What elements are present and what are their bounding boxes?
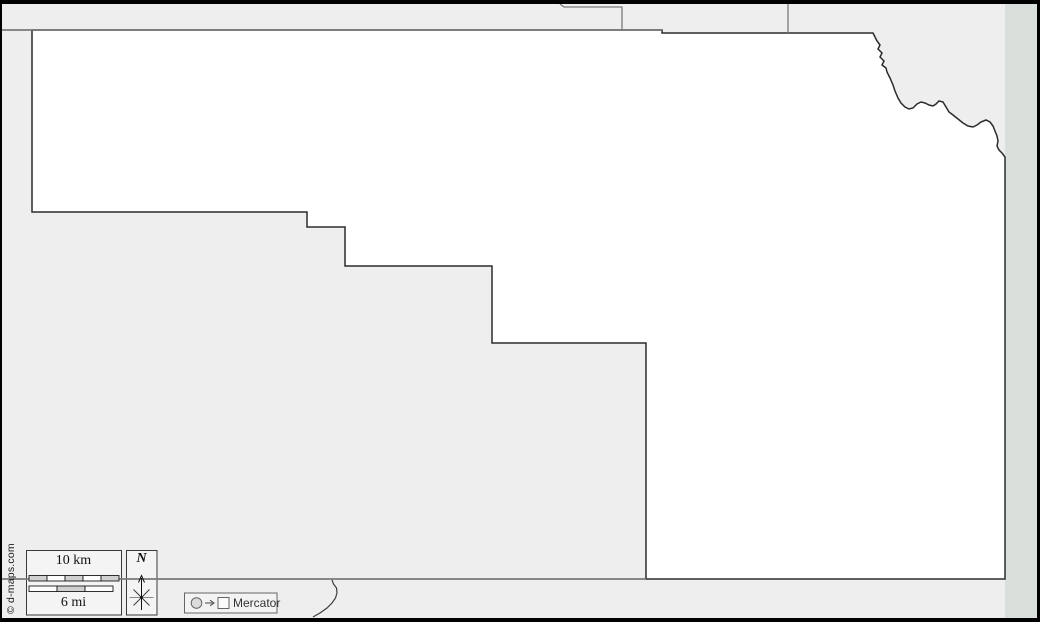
map-frame-top — [0, 0, 1040, 4]
projection-label: Mercator — [233, 596, 280, 610]
map-frame-bottom — [0, 618, 1040, 622]
scale-km-label: 10 km — [26, 553, 121, 569]
county-shape — [32, 30, 1005, 579]
dmaps-credit: © d-maps.com — [5, 543, 17, 614]
map-canvas — [0, 0, 1040, 622]
scale-mi-label: 6 mi — [26, 595, 121, 611]
compass-north-label: N — [126, 551, 157, 567]
neighbor-boundary-line — [560, 4, 622, 29]
river-line — [313, 580, 337, 617]
map-frame-left — [0, 0, 2, 622]
map-page: 10 km 6 mi N Mercator © d-maps.com — [0, 0, 1040, 622]
scale-bar-mi-icon — [29, 586, 113, 592]
outside-map-band — [1005, 0, 1037, 622]
scale-bar-km-icon — [29, 576, 119, 582]
